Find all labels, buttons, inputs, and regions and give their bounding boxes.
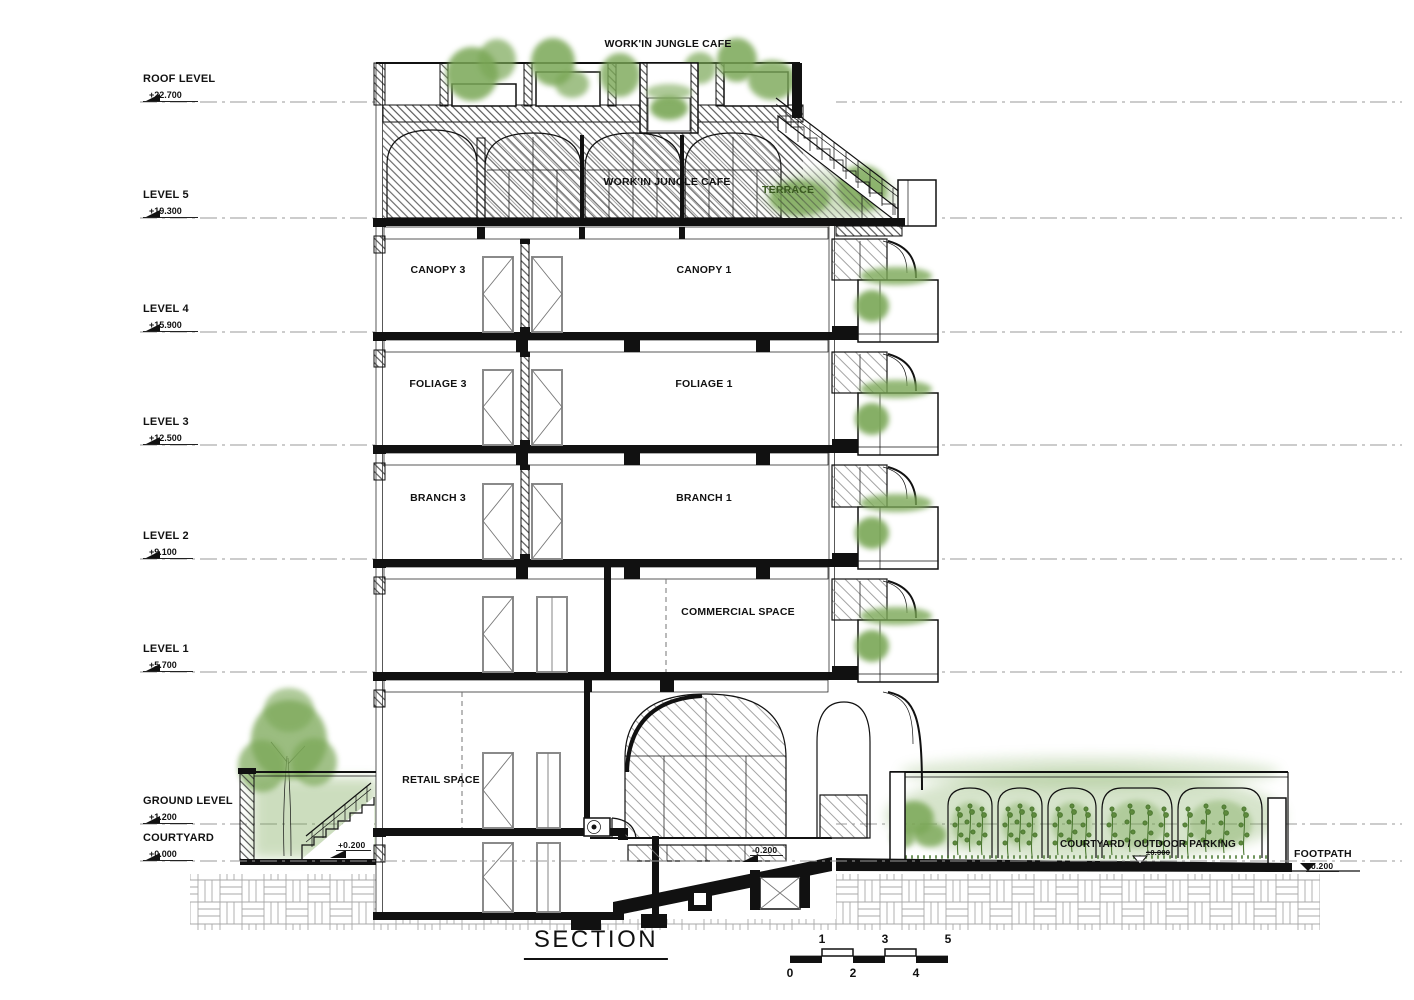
- right-courtyard: [832, 756, 1360, 872]
- level-4: LEVEL 4 +15.900: [143, 303, 198, 333]
- level-1: LEVEL 1 +5.700: [143, 643, 193, 673]
- branch3-label: BRANCH 3: [410, 492, 466, 504]
- scale-tick-2: 2: [850, 966, 857, 980]
- drawing-title: SECTION: [524, 926, 668, 960]
- cafe-interior-label: WORK'IN JUNGLE CAFE: [603, 176, 730, 188]
- cafe-roof-label: WORK'IN JUNGLE CAFE: [604, 38, 731, 50]
- level-5: LEVEL 5 +19.300: [143, 189, 198, 219]
- scale-tick-1: 1: [819, 932, 826, 946]
- level-2: LEVEL 2 +9.100: [143, 530, 193, 560]
- section-drawing: .w{fill:#fff;stroke:#111;stroke-width:1.…: [0, 0, 1414, 1000]
- level-courtyard: COURTYARD +0.000: [143, 832, 214, 862]
- scale-tick-3: 3: [882, 932, 889, 946]
- building: [373, 38, 938, 930]
- cafe-level: [383, 105, 803, 218]
- level-ground: GROUND LEVEL +1.200: [143, 795, 233, 825]
- scale-tick-0: 0: [787, 966, 794, 980]
- commercial-label: COMMERCIAL SPACE: [681, 606, 795, 618]
- canopy1-label: CANOPY 1: [676, 264, 731, 276]
- facade-planters: [832, 239, 938, 790]
- foliage3-label: FOLIAGE 3: [409, 378, 466, 390]
- level-roof: ROOF LEVEL +22.700: [143, 73, 215, 103]
- ramp-elevation: -0.200: [750, 845, 783, 856]
- canopy3-label: CANOPY 3: [410, 264, 465, 276]
- stair-elevation: +0.200: [336, 840, 371, 851]
- retail-label: RETAIL SPACE: [402, 774, 480, 786]
- parking-elevation: ±0.000: [1146, 848, 1170, 857]
- footpath-label: FOOTPATH: [1294, 848, 1352, 860]
- level-3: LEVEL 3 +12.500: [143, 416, 198, 446]
- scale-tick-5: 5: [945, 932, 952, 946]
- scale-tick-4: 4: [913, 966, 920, 980]
- foliage1-label: FOLIAGE 1: [675, 378, 732, 390]
- branch1-label: BRANCH 1: [676, 492, 732, 504]
- scale-bar-graphic: [790, 949, 948, 963]
- terrace-label: TERRACE: [762, 184, 814, 196]
- footpath-elevation: -0.200: [1306, 861, 1339, 872]
- left-courtyard: [238, 688, 378, 865]
